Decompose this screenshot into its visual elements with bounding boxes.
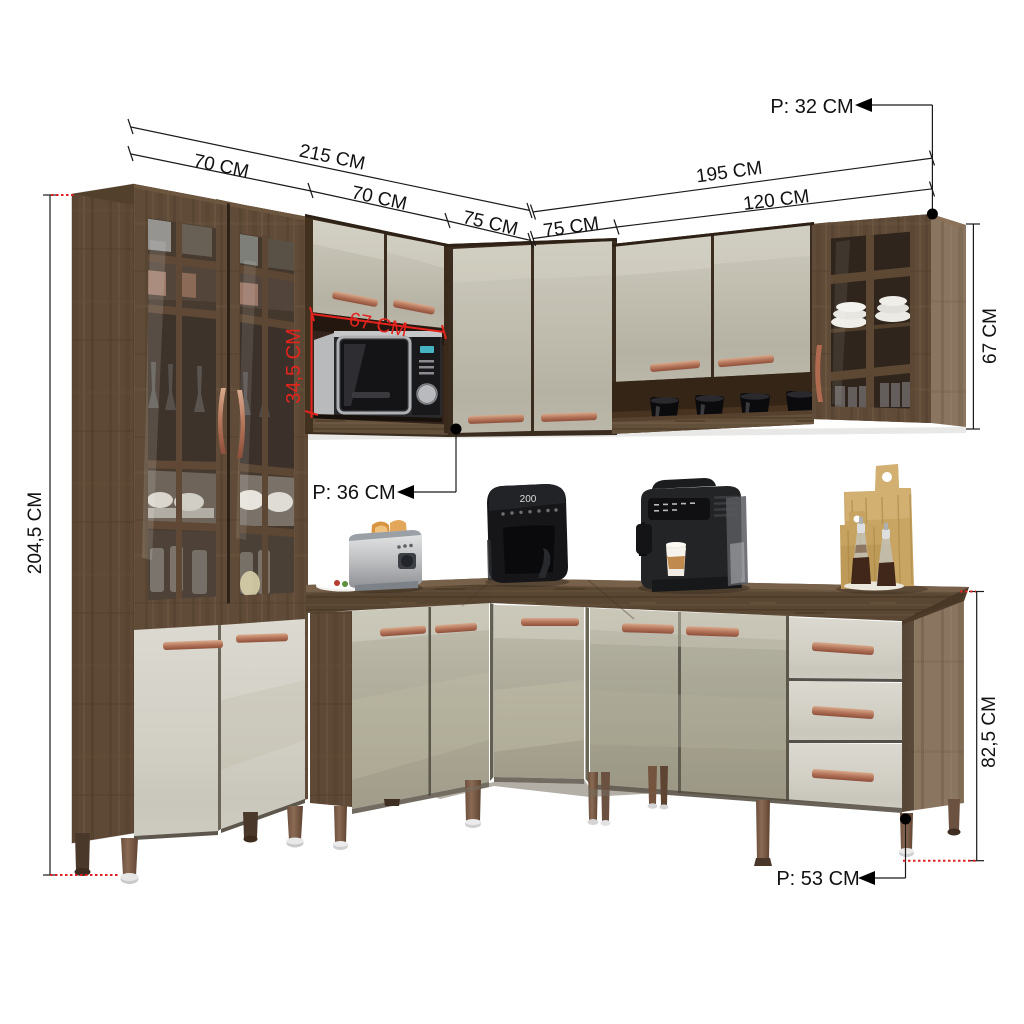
svg-text:34,5 CM: 34,5 CM [283, 328, 305, 404]
svg-text:P: 53 CM: P: 53 CM [776, 868, 859, 890]
svg-text:67 CM: 67 CM [980, 308, 1001, 364]
svg-text:82,5 CM: 82,5 CM [979, 696, 1000, 768]
svg-text:P: 32 CM: P: 32 CM [770, 96, 853, 118]
svg-text:P: 36 CM: P: 36 CM [312, 482, 395, 504]
svg-text:200: 200 [520, 494, 537, 505]
svg-text:204,5 CM: 204,5 CM [25, 492, 46, 574]
